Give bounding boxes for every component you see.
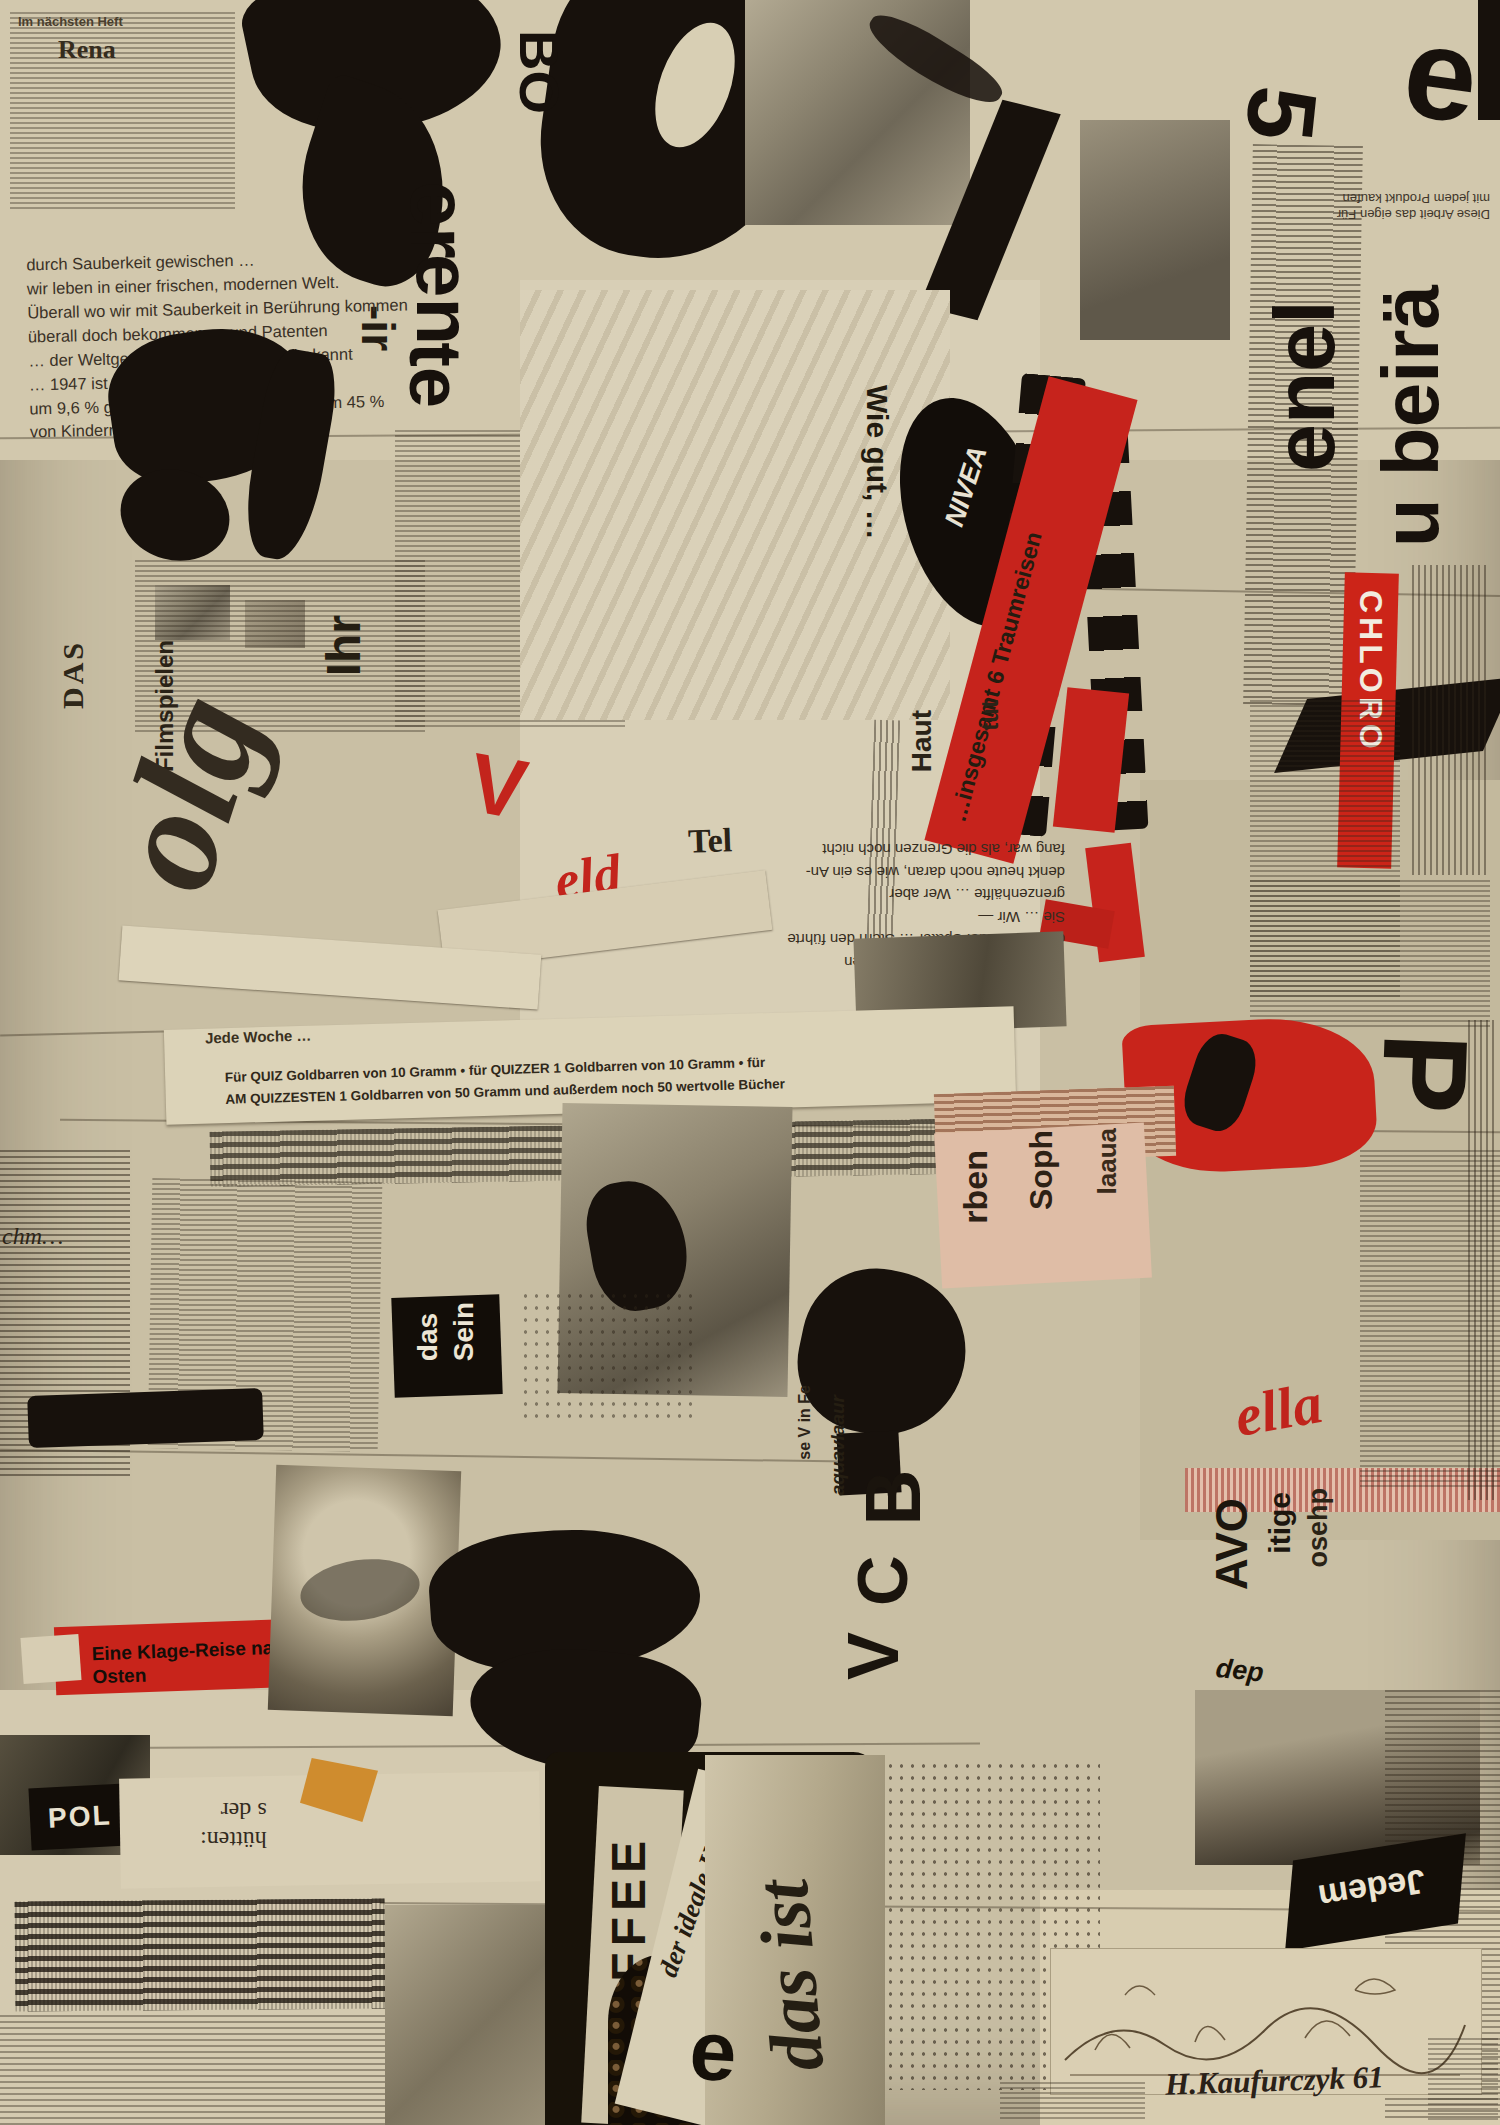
script-das-ist: das ist (737, 1876, 844, 2074)
newsprint-column (1250, 700, 1400, 1000)
vertical-caption-wie-gut: Wie gut, … (858, 385, 895, 715)
vertical-word-tut: tut (975, 700, 1004, 731)
black-bar (1478, 0, 1500, 120)
headline-rena: Rena (58, 34, 116, 66)
vertical-word-laaua: laaua (1092, 1128, 1124, 1195)
white-chip (20, 1634, 81, 1684)
dense-fraktur-rows (15, 1898, 386, 2011)
artist-signature: H.Kaufurczyk 61 (1164, 2058, 1384, 2103)
halftone-block (520, 1290, 700, 1420)
fragment-chm: chm… (2, 1222, 63, 1251)
pol-label: POL (47, 1798, 112, 1835)
photo-fragment (385, 1905, 560, 2125)
big-letter-e2: e (686, 1998, 740, 2103)
tiny-text-column (1428, 2038, 1498, 2123)
black-bar (27, 1388, 264, 1448)
collage-artwork: Im nächsten Heft Rena BO er en te -ir du… (0, 0, 1500, 2125)
vertical-word-rben: rben (955, 1150, 996, 1224)
vertical-caption-aqua: aquavlaaur (826, 1395, 849, 1495)
outline-letter-c: C (841, 1555, 926, 1606)
outline-letter-v: V (830, 1632, 918, 1680)
photo-fragment (1080, 120, 1230, 340)
vertical-word-itige: itige (1262, 1492, 1299, 1554)
jede-woche-caption: Jede Woche … (205, 1027, 312, 1048)
torn-edge (0, 1449, 900, 1464)
vertical-caption-sev: se V in Fe (795, 1385, 815, 1460)
vertical-word-ihr: Ihr (315, 615, 374, 676)
red-script-ella: ella (1230, 1368, 1328, 1453)
vertical-word-soph: Soph (1022, 1130, 1061, 1210)
upside-down-huetten: hütten: s der (200, 1795, 267, 1854)
tiny-text-row (1000, 2082, 1145, 2122)
newsprint-block (0, 2015, 420, 2125)
vertical-text-edge (1468, 1020, 1498, 1500)
outline-letter-b: B (846, 1469, 941, 1525)
upside-down-caption: Diese Arbeit das eigen Für mit jedem Pro… (1280, 190, 1490, 222)
vertical-ad-text (1412, 565, 1490, 875)
vertical-word-das: DAS (55, 640, 92, 709)
newsprint-column (10, 12, 235, 212)
vertical-word-haut: Haut (905, 710, 939, 772)
big-vertical-word-enel: enel (1252, 300, 1357, 472)
masthead-note: Im nächsten Heft (18, 14, 123, 30)
vertical-word-osehp: osehp (1302, 1488, 1335, 1568)
big-letters-bo: BO (505, 30, 573, 114)
big-vertical-word-ubeira: u beirä (1362, 285, 1460, 547)
vertical-word-avo: AVO (1205, 1498, 1259, 1590)
photo-fragment (745, 0, 970, 225)
das-sein-label: das Sein (410, 1302, 483, 1361)
